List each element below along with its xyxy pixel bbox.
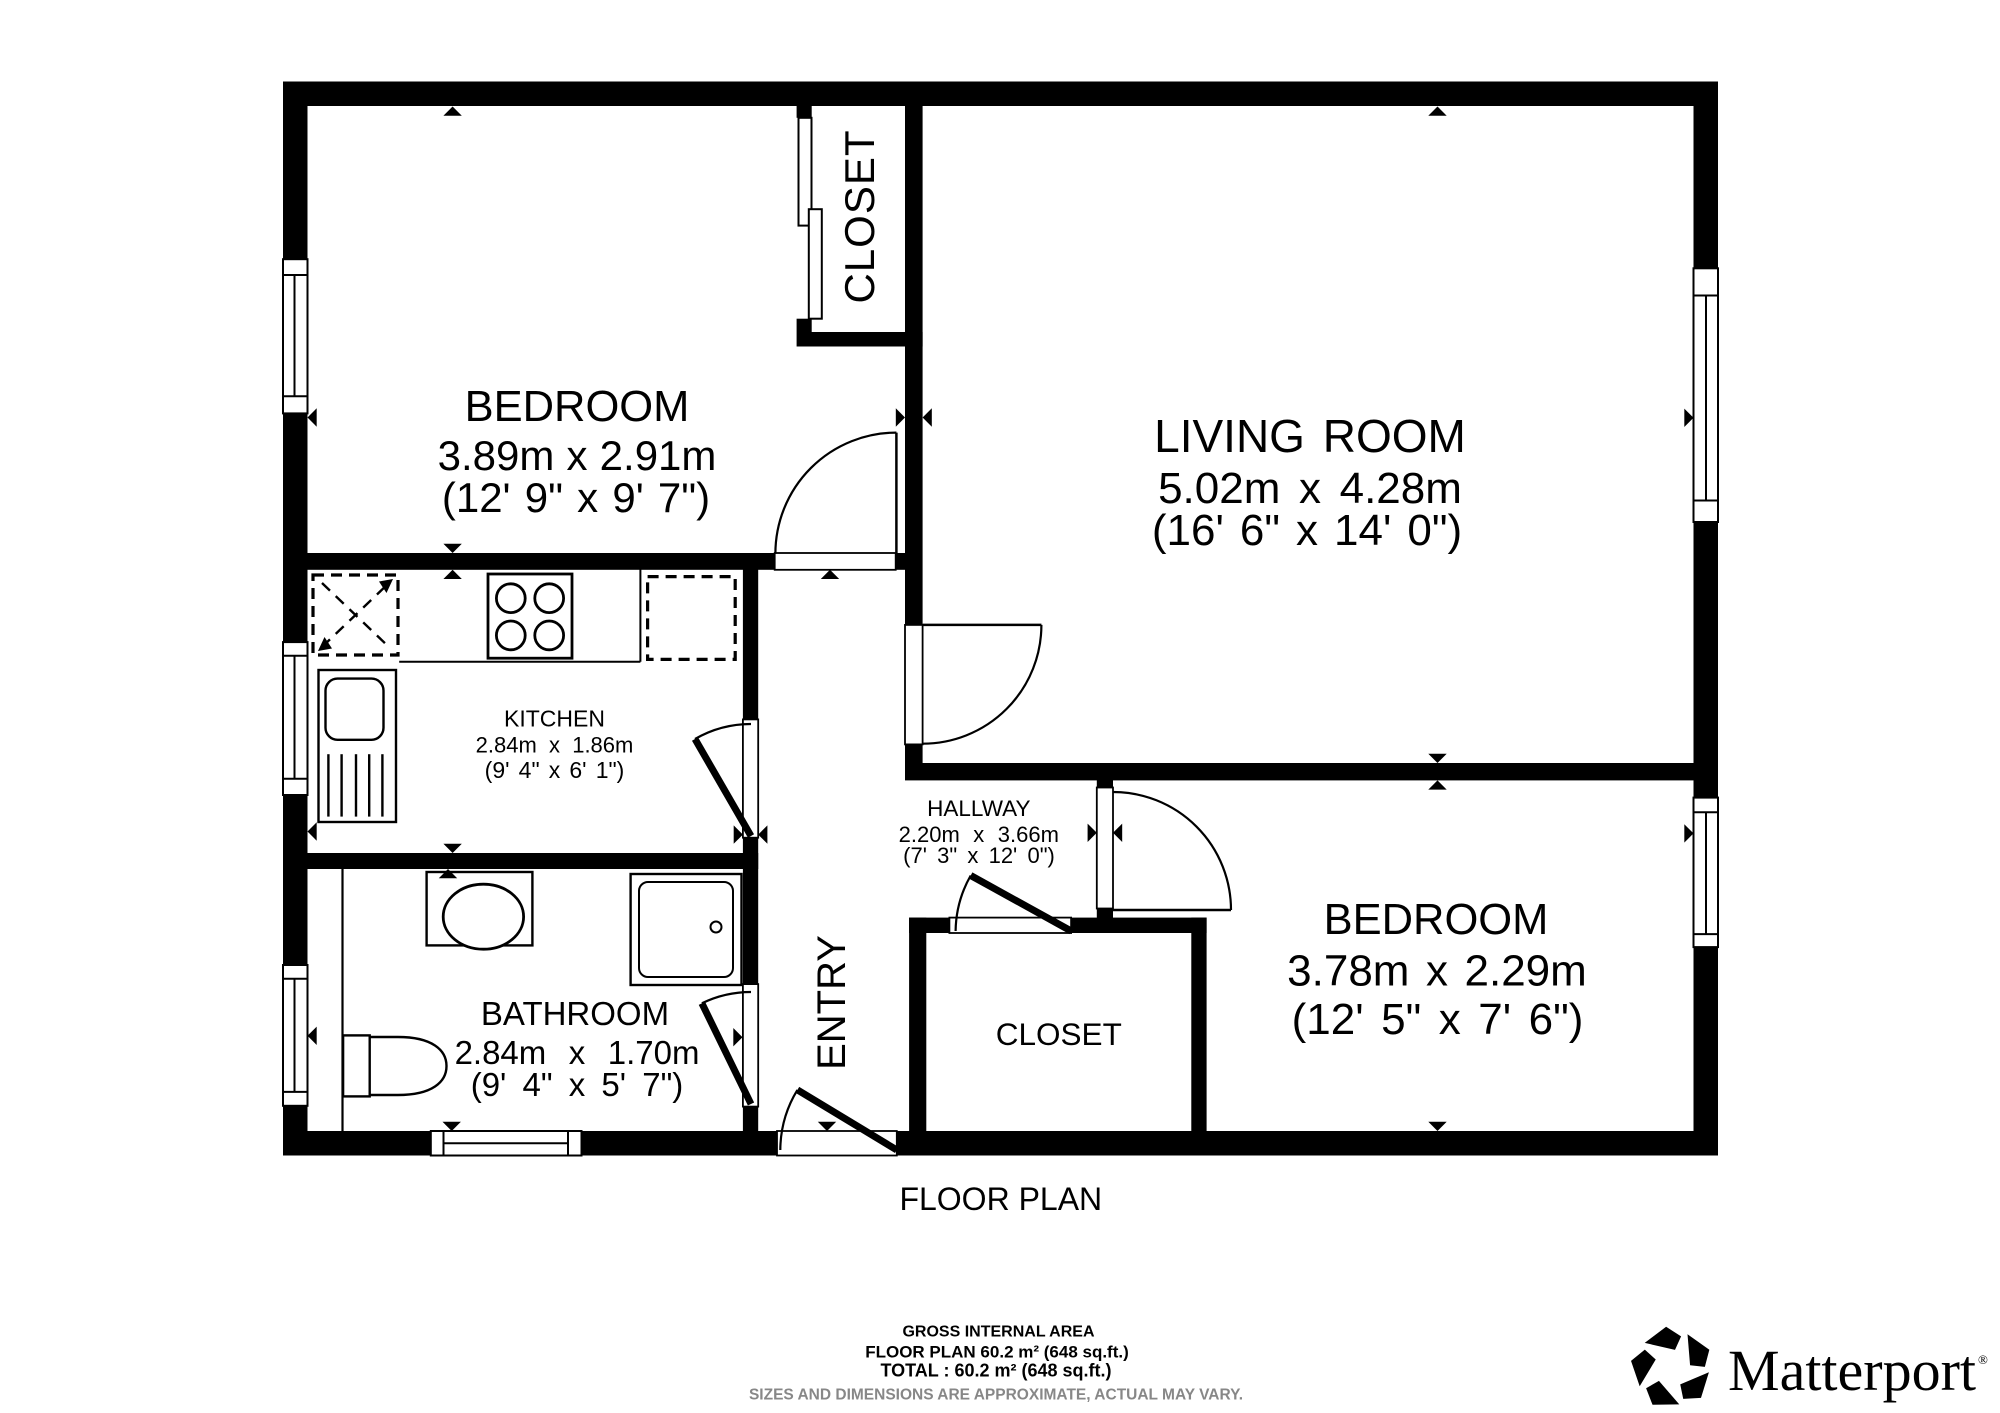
svg-text:(12' 9" x 9' 7"): (12' 9" x 9' 7"): [442, 474, 710, 521]
svg-text:FLOOR PLAN 60.2 m² (648 sq.ft.: FLOOR PLAN 60.2 m² (648 sq.ft.): [865, 1343, 1129, 1362]
svg-text:FLOOR PLAN: FLOOR PLAN: [899, 1181, 1102, 1217]
svg-text:BATHROOM: BATHROOM: [481, 995, 669, 1032]
svg-text:CLOSET: CLOSET: [836, 129, 883, 303]
svg-text:CLOSET: CLOSET: [996, 1016, 1122, 1052]
svg-text:3.78m x 2.29m: 3.78m x 2.29m: [1287, 947, 1587, 996]
svg-text:2.84m x 1.86m: 2.84m x 1.86m: [476, 733, 634, 758]
svg-text:Matterport®: Matterport®: [1728, 1338, 1988, 1403]
svg-text:(9' 4" x 5' 7"): (9' 4" x 5' 7"): [471, 1066, 684, 1103]
svg-text:BEDROOM: BEDROOM: [1324, 896, 1549, 944]
svg-text:ENTRY: ENTRY: [810, 935, 854, 1070]
svg-text:SIZES AND DIMENSIONS ARE APPRO: SIZES AND DIMENSIONS ARE APPROXIMATE, AC…: [749, 1387, 1243, 1404]
svg-text:HALLWAY: HALLWAY: [927, 796, 1030, 821]
svg-text:(9' 4" x 6' 1"): (9' 4" x 6' 1"): [485, 757, 625, 783]
svg-text:(12' 5" x 7' 6"): (12' 5" x 7' 6"): [1292, 995, 1584, 1044]
svg-text:TOTAL : 60.2 m² (648 sq.ft.): TOTAL : 60.2 m² (648 sq.ft.): [880, 1361, 1111, 1381]
svg-text:3.89m x 2.91m: 3.89m x 2.91m: [438, 432, 717, 479]
svg-text:(7' 3" x 12' 0"): (7' 3" x 12' 0"): [903, 843, 1055, 868]
svg-text:(16' 6" x 14' 0"): (16' 6" x 14' 0"): [1152, 506, 1462, 555]
svg-text:LIVING ROOM: LIVING ROOM: [1154, 410, 1466, 462]
svg-text:GROSS INTERNAL AREA: GROSS INTERNAL AREA: [902, 1324, 1094, 1341]
svg-text:KITCHEN: KITCHEN: [504, 706, 605, 732]
svg-text:BEDROOM: BEDROOM: [465, 383, 690, 431]
